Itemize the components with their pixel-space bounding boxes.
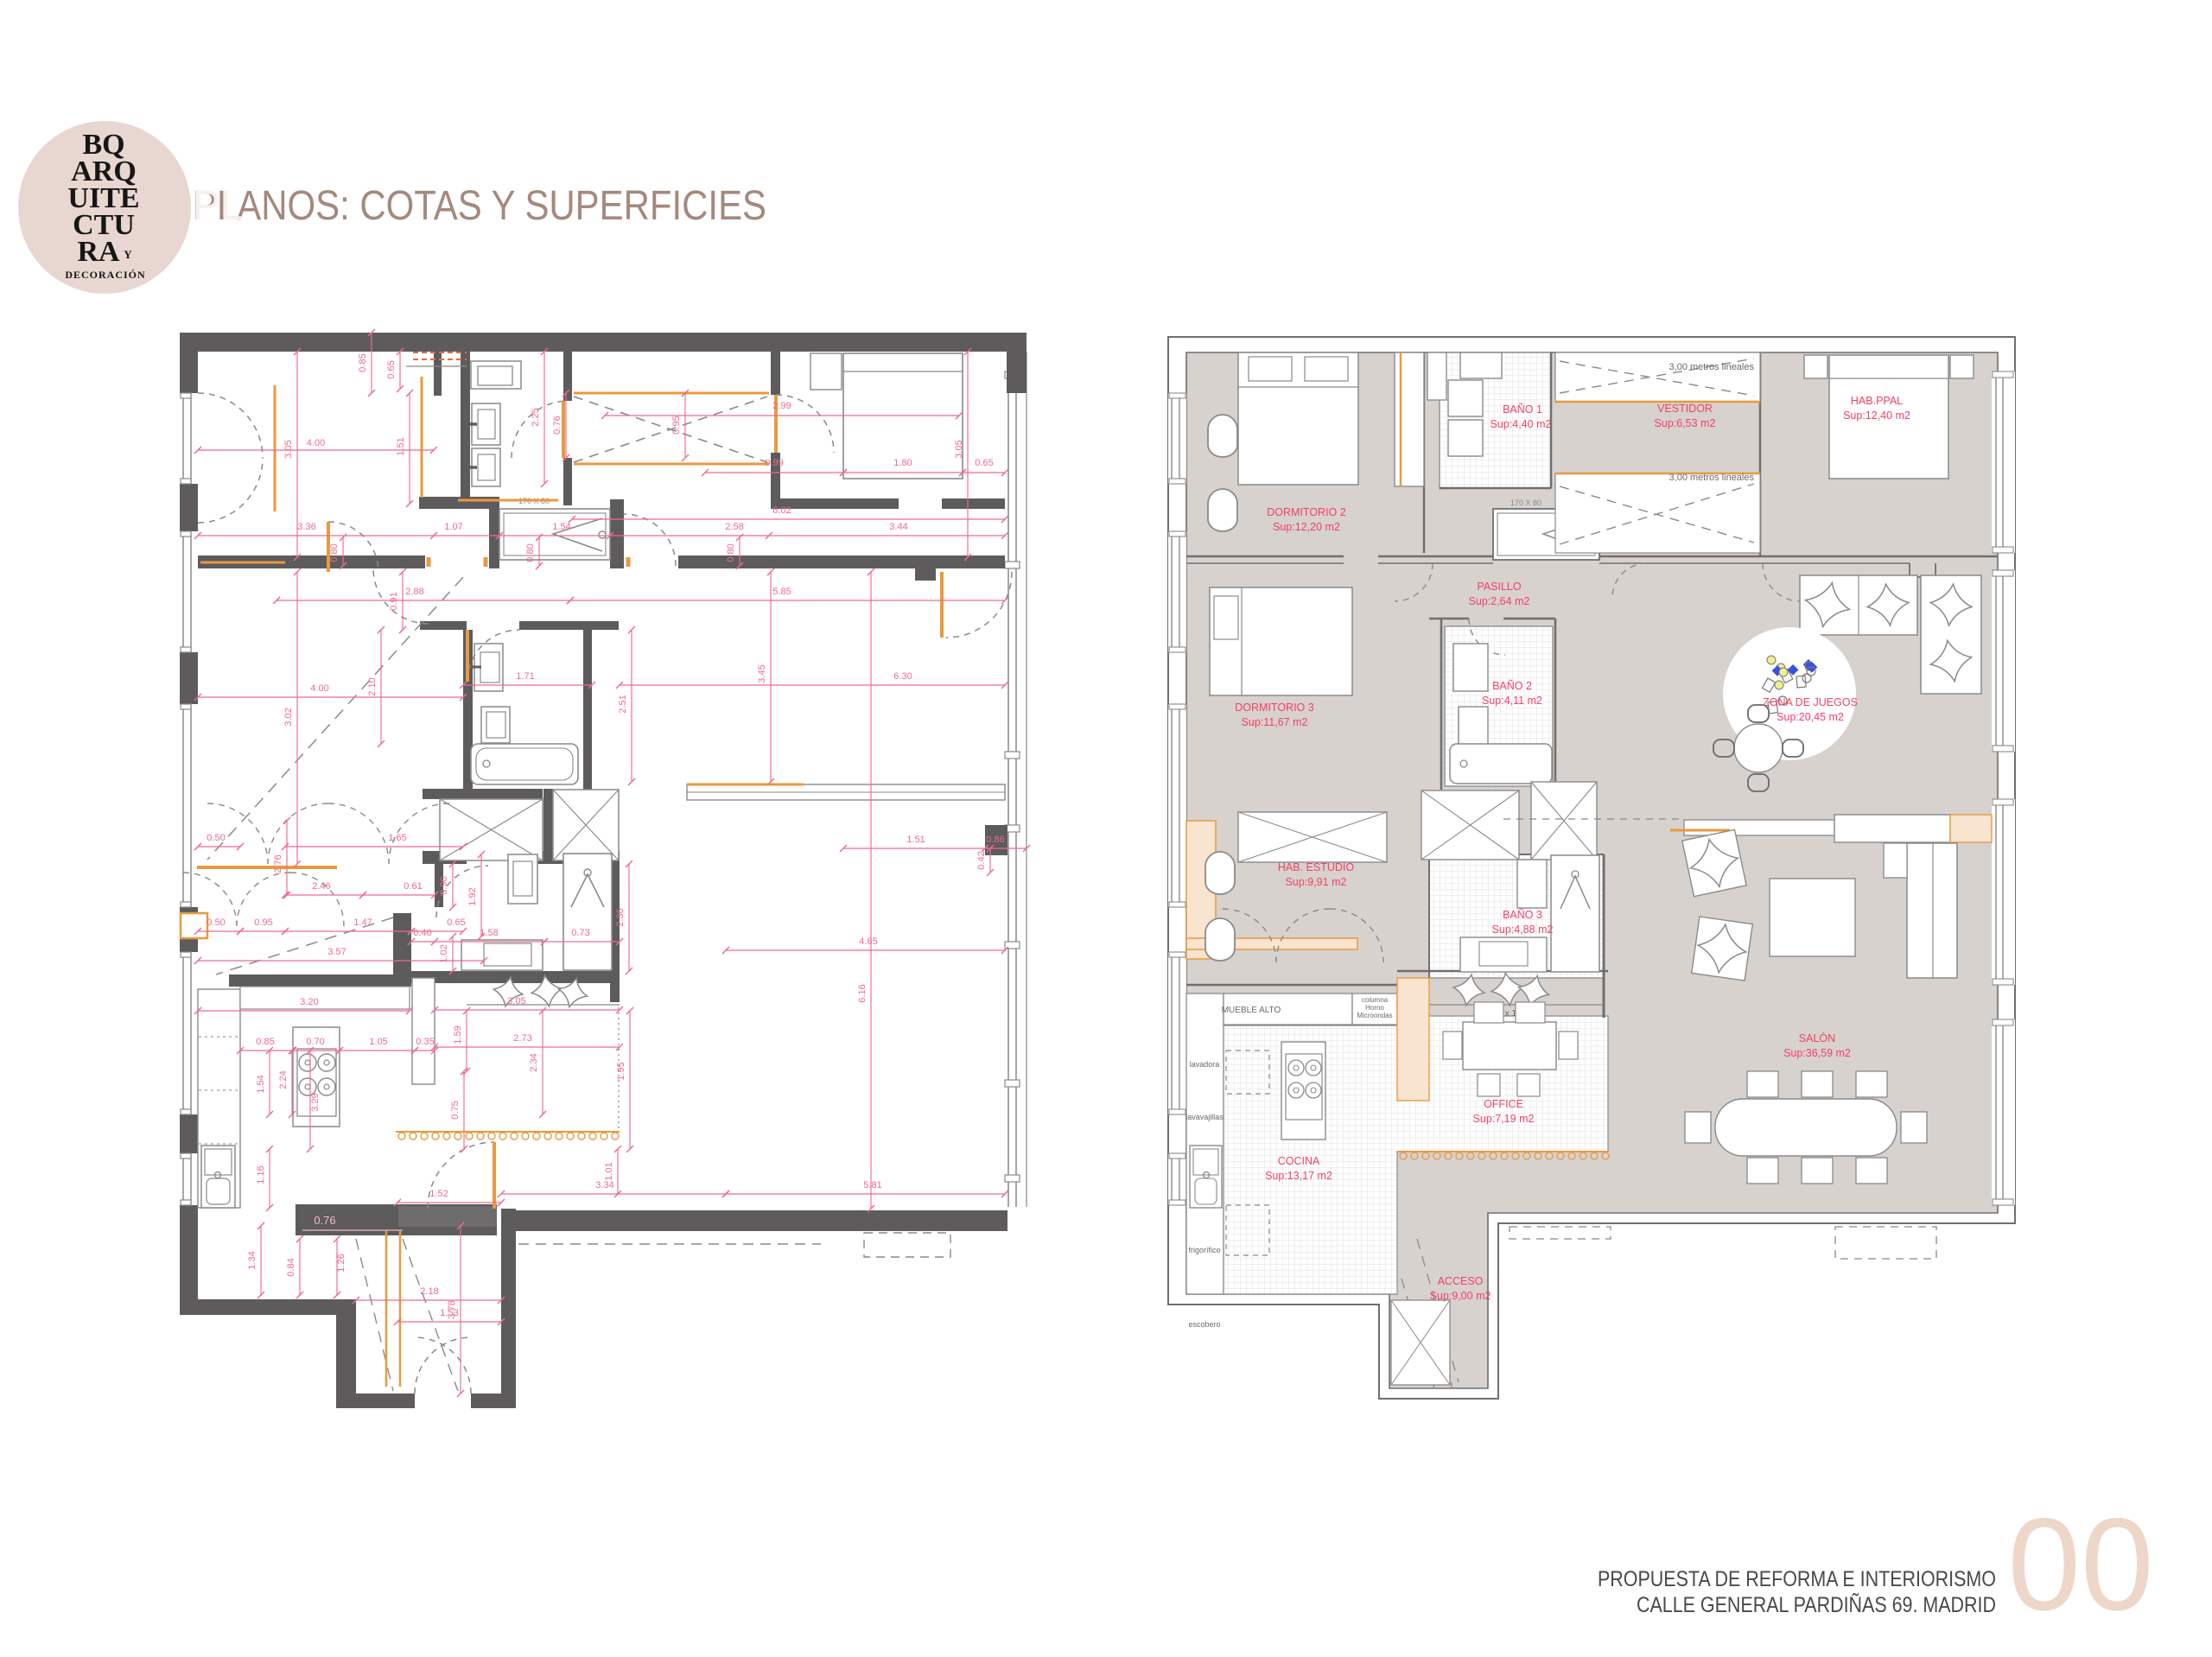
svg-text:00: 00 (2007, 1491, 2153, 1638)
svg-text:0.65: 0.65 (447, 917, 465, 928)
svg-text:2.46: 2.46 (312, 881, 330, 892)
svg-text:0.40: 0.40 (413, 928, 431, 938)
svg-text:0.91: 0.91 (389, 592, 399, 610)
svg-text:PASILLO: PASILLO (1477, 581, 1521, 593)
svg-text:Sup:7,19 m2: Sup:7,19 m2 (1473, 1113, 1535, 1125)
svg-text:0.95: 0.95 (254, 917, 272, 928)
svg-text:SALÓN: SALÓN (1799, 1032, 1835, 1044)
svg-text:0.76: 0.76 (314, 1214, 335, 1227)
svg-text:3.05: 3.05 (507, 996, 525, 1006)
svg-text:3.57: 3.57 (327, 947, 346, 957)
svg-text:0.65: 0.65 (975, 458, 993, 468)
svg-text:1.34: 1.34 (247, 1251, 257, 1269)
svg-text:CALLE GENERAL PARDIÑAS 69. MAD: CALLE GENERAL PARDIÑAS 69. MADRID (1637, 1592, 1996, 1617)
svg-text:4.00: 4.00 (310, 683, 328, 694)
svg-text:1.51: 1.51 (906, 835, 925, 845)
svg-text:0.73: 0.73 (571, 928, 589, 938)
svg-text:Microondas: Microondas (1357, 1012, 1392, 1019)
svg-text:3.02: 3.02 (283, 708, 294, 726)
svg-text:2.36: 2.36 (615, 908, 626, 926)
svg-text:3.34: 3.34 (595, 1180, 613, 1190)
svg-text:Y: Y (124, 248, 132, 261)
svg-text:OFFICE: OFFICE (1484, 1098, 1523, 1110)
svg-text:4.65: 4.65 (859, 936, 877, 947)
svg-text:0.84: 0.84 (286, 1258, 296, 1276)
svg-text:1.54: 1.54 (256, 1075, 266, 1093)
svg-text:BAÑO 2: BAÑO 2 (1492, 680, 1532, 692)
svg-text:BAÑO 3: BAÑO 3 (1503, 909, 1542, 921)
svg-text:COCINA: COCINA (1278, 1155, 1320, 1167)
svg-text:0.42: 0.42 (976, 851, 987, 869)
svg-text:1.80: 1.80 (893, 458, 912, 468)
svg-text:2.73: 2.73 (513, 1033, 531, 1044)
svg-text:3.78: 3.78 (447, 1300, 457, 1318)
svg-text:escobero: escobero (1188, 1320, 1220, 1329)
svg-text:3.36: 3.36 (297, 522, 315, 532)
svg-text:0.99: 0.99 (765, 458, 783, 468)
svg-text:0.50: 0.50 (207, 833, 225, 843)
svg-text:1.59: 1.59 (453, 1025, 463, 1044)
svg-text:3,00 metros lineales: 3,00 metros lineales (1669, 473, 1755, 483)
svg-text:5.85: 5.85 (772, 587, 791, 597)
svg-text:Sup:36,59 m2: Sup:36,59 m2 (1783, 1047, 1851, 1059)
svg-text:PLANOS: COTAS Y SUPERFICIES: PLANOS: COTAS Y SUPERFICIES (193, 183, 766, 229)
svg-text:0.90: 0.90 (439, 876, 449, 894)
svg-text:0.85: 0.85 (358, 353, 368, 371)
svg-text:1.02: 1.02 (439, 944, 449, 962)
svg-text:HAB. ESTUDIO: HAB. ESTUDIO (1278, 861, 1354, 873)
svg-text:Sup:4,11 m2: Sup:4,11 m2 (1482, 695, 1542, 707)
svg-text:3.05: 3.05 (954, 440, 964, 458)
svg-text:columna: columna (1362, 996, 1389, 1004)
svg-text:2.10: 2.10 (367, 677, 378, 695)
svg-text:1.16: 1.16 (256, 1165, 266, 1184)
svg-text:1.05: 1.05 (369, 1037, 387, 1047)
svg-text:PL: PL (193, 183, 243, 229)
svg-text:0.50: 0.50 (207, 917, 225, 928)
svg-text:3,00 metros lineales: 3,00 metros lineales (1669, 362, 1755, 372)
svg-text:6.02: 6.02 (772, 505, 791, 516)
svg-text:2.88: 2.88 (405, 587, 423, 597)
svg-text:0.80: 0.80 (525, 543, 536, 562)
svg-text:Sup:6,53 m2: Sup:6,53 m2 (1655, 417, 1716, 429)
svg-text:2.58: 2.58 (725, 522, 743, 532)
svg-text:2.99: 2.99 (772, 401, 791, 411)
svg-text:1.54: 1.54 (552, 522, 570, 532)
svg-text:0.95: 0.95 (671, 416, 682, 434)
svg-text:1.52: 1.52 (429, 1189, 448, 1199)
svg-text:DORMITORIO 3: DORMITORIO 3 (1235, 702, 1313, 714)
svg-text:0.35: 0.35 (416, 1037, 434, 1047)
svg-text:3.44: 3.44 (889, 522, 907, 532)
svg-text:1.47: 1.47 (353, 917, 372, 928)
svg-text:Sup:9,91 m2: Sup:9,91 m2 (1286, 876, 1347, 888)
svg-text:2.24: 2.24 (278, 1070, 289, 1089)
svg-text:0.86: 0.86 (986, 835, 1004, 845)
svg-text:Sup:20,45 m2: Sup:20,45 m2 (1777, 711, 1844, 723)
svg-text:lavadora: lavadora (1190, 1060, 1220, 1069)
svg-text:3.05: 3.05 (283, 440, 294, 458)
svg-text:2.25: 2.25 (531, 408, 541, 426)
svg-text:2.18: 2.18 (420, 1286, 438, 1297)
svg-text:BAÑO 1: BAÑO 1 (1503, 403, 1542, 416)
svg-text:VESTIDOR: VESTIDOR (1657, 403, 1713, 415)
svg-text:DORMITORIO 2: DORMITORIO 2 (1267, 506, 1345, 518)
svg-text:0.61: 0.61 (404, 881, 422, 892)
svg-text:Sup:4,88 m2: Sup:4,88 m2 (1492, 924, 1554, 936)
svg-text:0.75: 0.75 (450, 1101, 461, 1119)
svg-text:3.20: 3.20 (300, 997, 318, 1007)
svg-text:1.65: 1.65 (388, 833, 406, 843)
svg-text:2.51: 2.51 (618, 695, 628, 713)
svg-text:Sup:12,40 m2: Sup:12,40 m2 (1843, 409, 1910, 422)
svg-text:1.58: 1.58 (480, 928, 498, 938)
svg-text:Sup:2,64 m2: Sup:2,64 m2 (1469, 595, 1530, 607)
svg-text:0.85: 0.85 (256, 1037, 274, 1047)
svg-text:3.29: 3.29 (310, 1093, 321, 1111)
svg-text:Sup:13,17 m2: Sup:13,17 m2 (1265, 1170, 1332, 1182)
svg-text:ZONA DE JUEGOS: ZONA DE JUEGOS (1763, 696, 1858, 708)
svg-text:2.76: 2.76 (273, 854, 283, 873)
svg-text:HAB.PPAL: HAB.PPAL (1851, 395, 1903, 407)
svg-text:1.95: 1.95 (616, 1062, 626, 1080)
svg-text:PROPUESTA DE REFORMA E INTERIO: PROPUESTA DE REFORMA E INTERIORISMO (1598, 1567, 1996, 1591)
svg-text:1.26: 1.26 (336, 1254, 346, 1272)
svg-text:3.45: 3.45 (757, 664, 767, 682)
svg-text:1.71: 1.71 (516, 671, 534, 682)
svg-text:1.92: 1.92 (467, 887, 478, 905)
svg-text:0.65: 0.65 (386, 360, 397, 378)
svg-text:lavavajillas: lavavajillas (1185, 1113, 1224, 1121)
svg-text:4.00: 4.00 (307, 438, 325, 448)
svg-text:0.80: 0.80 (726, 543, 736, 562)
svg-text:Horno: Horno (1365, 1004, 1384, 1012)
svg-text:1.07: 1.07 (444, 522, 462, 532)
svg-text:Sup:9,00 m2: Sup:9,00 m2 (1430, 1290, 1491, 1302)
svg-text:Sup:12,20 m2: Sup:12,20 m2 (1273, 521, 1340, 533)
svg-text:170 X 80: 170 X 80 (1510, 498, 1541, 507)
svg-text:1.01: 1.01 (604, 1162, 614, 1180)
svg-text:0.80: 0.80 (329, 543, 340, 562)
svg-text:2.34: 2.34 (529, 1053, 539, 1071)
svg-text:6.30: 6.30 (893, 671, 912, 682)
svg-text:DECORACIÓN: DECORACIÓN (65, 269, 145, 281)
svg-text:6.16: 6.16 (857, 984, 868, 1002)
svg-text:0.70: 0.70 (306, 1037, 324, 1047)
svg-text:MUEBLE ALTO: MUEBLE ALTO (1222, 1006, 1281, 1015)
svg-text:Sup:11,67 m2: Sup:11,67 m2 (1242, 716, 1308, 728)
svg-text:0.76: 0.76 (552, 416, 563, 434)
svg-text:5.81: 5.81 (863, 1180, 881, 1190)
svg-text:ACCESO: ACCESO (1438, 1275, 1484, 1287)
svg-text:Sup:4,40 m2: Sup:4,40 m2 (1491, 418, 1552, 430)
svg-text:1.51: 1.51 (396, 437, 406, 455)
svg-text:frigorífico: frigorífico (1188, 1246, 1220, 1254)
svg-text:RA: RA (77, 236, 120, 268)
